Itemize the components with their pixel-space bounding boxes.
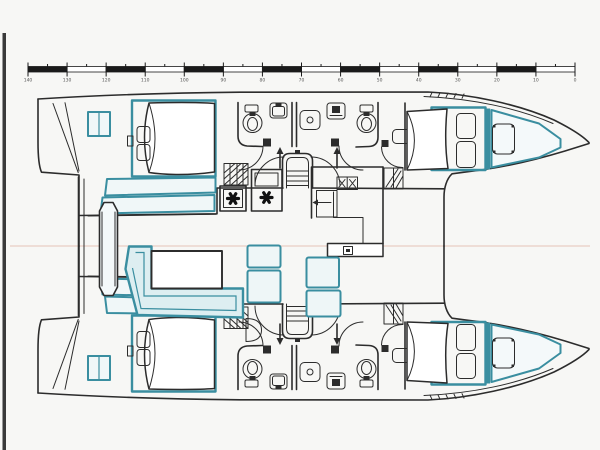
cockpit-table <box>100 203 118 296</box>
ruler-tick-label: 110 <box>141 78 150 84</box>
burner-icon <box>261 193 272 203</box>
ruler-segment <box>536 67 575 73</box>
ruler-tick-label: 80 <box>260 78 266 84</box>
ruler-segment <box>380 67 419 73</box>
scale-ruler: 1401301201101009080706050403020100 <box>24 63 577 84</box>
ruler-tick-label: 10 <box>533 78 539 84</box>
floor-plan-canvas: 1401301201101009080706050403020100 <box>0 0 600 450</box>
ruler-tick-label: 40 <box>416 78 422 84</box>
ruler-segment <box>302 67 341 73</box>
galley <box>312 167 384 257</box>
dinette-table <box>152 251 223 289</box>
ruler-tick-label: 100 <box>180 78 189 84</box>
ruler-tick-label: 0 <box>574 78 577 84</box>
ruler-tick-label: 30 <box>455 78 461 84</box>
ruler-tick-label: 90 <box>220 78 226 84</box>
ruler-tick-label: 50 <box>377 78 383 84</box>
galley-wall <box>312 167 384 218</box>
hull-port <box>38 92 589 246</box>
ruler-tick-label: 130 <box>63 78 72 84</box>
stove-unit <box>220 170 282 212</box>
ruler-tick-label: 20 <box>494 78 500 84</box>
ruler-segment <box>184 67 223 73</box>
ruler-segment <box>67 67 106 73</box>
ruler-segment <box>106 67 145 73</box>
fridge-arrow <box>313 200 319 206</box>
galley-island <box>328 244 384 257</box>
ruler-segment <box>419 67 458 73</box>
ruler-tick-label: 120 <box>102 78 111 84</box>
floor-plan-page: 1401301201101009080706050403020100 <box>0 0 600 450</box>
ruler-segment <box>458 67 497 73</box>
sheet-edge <box>3 33 7 450</box>
ruler-segment <box>145 67 184 73</box>
seat-cushion <box>248 246 281 268</box>
ruler-segment <box>223 67 262 73</box>
ruler-segment <box>262 67 301 73</box>
seat-cushion <box>307 258 340 288</box>
ruler-segment <box>28 67 67 73</box>
burner-icon <box>228 194 239 204</box>
ruler-tick-label: 60 <box>338 78 344 84</box>
ruler-tick-label: 140 <box>24 78 33 84</box>
ruler-segment <box>341 67 380 73</box>
ruler-segment <box>497 67 536 73</box>
seat-cushion <box>248 271 281 303</box>
ruler-tick-label: 70 <box>299 78 305 84</box>
seat-cushion <box>307 291 341 317</box>
